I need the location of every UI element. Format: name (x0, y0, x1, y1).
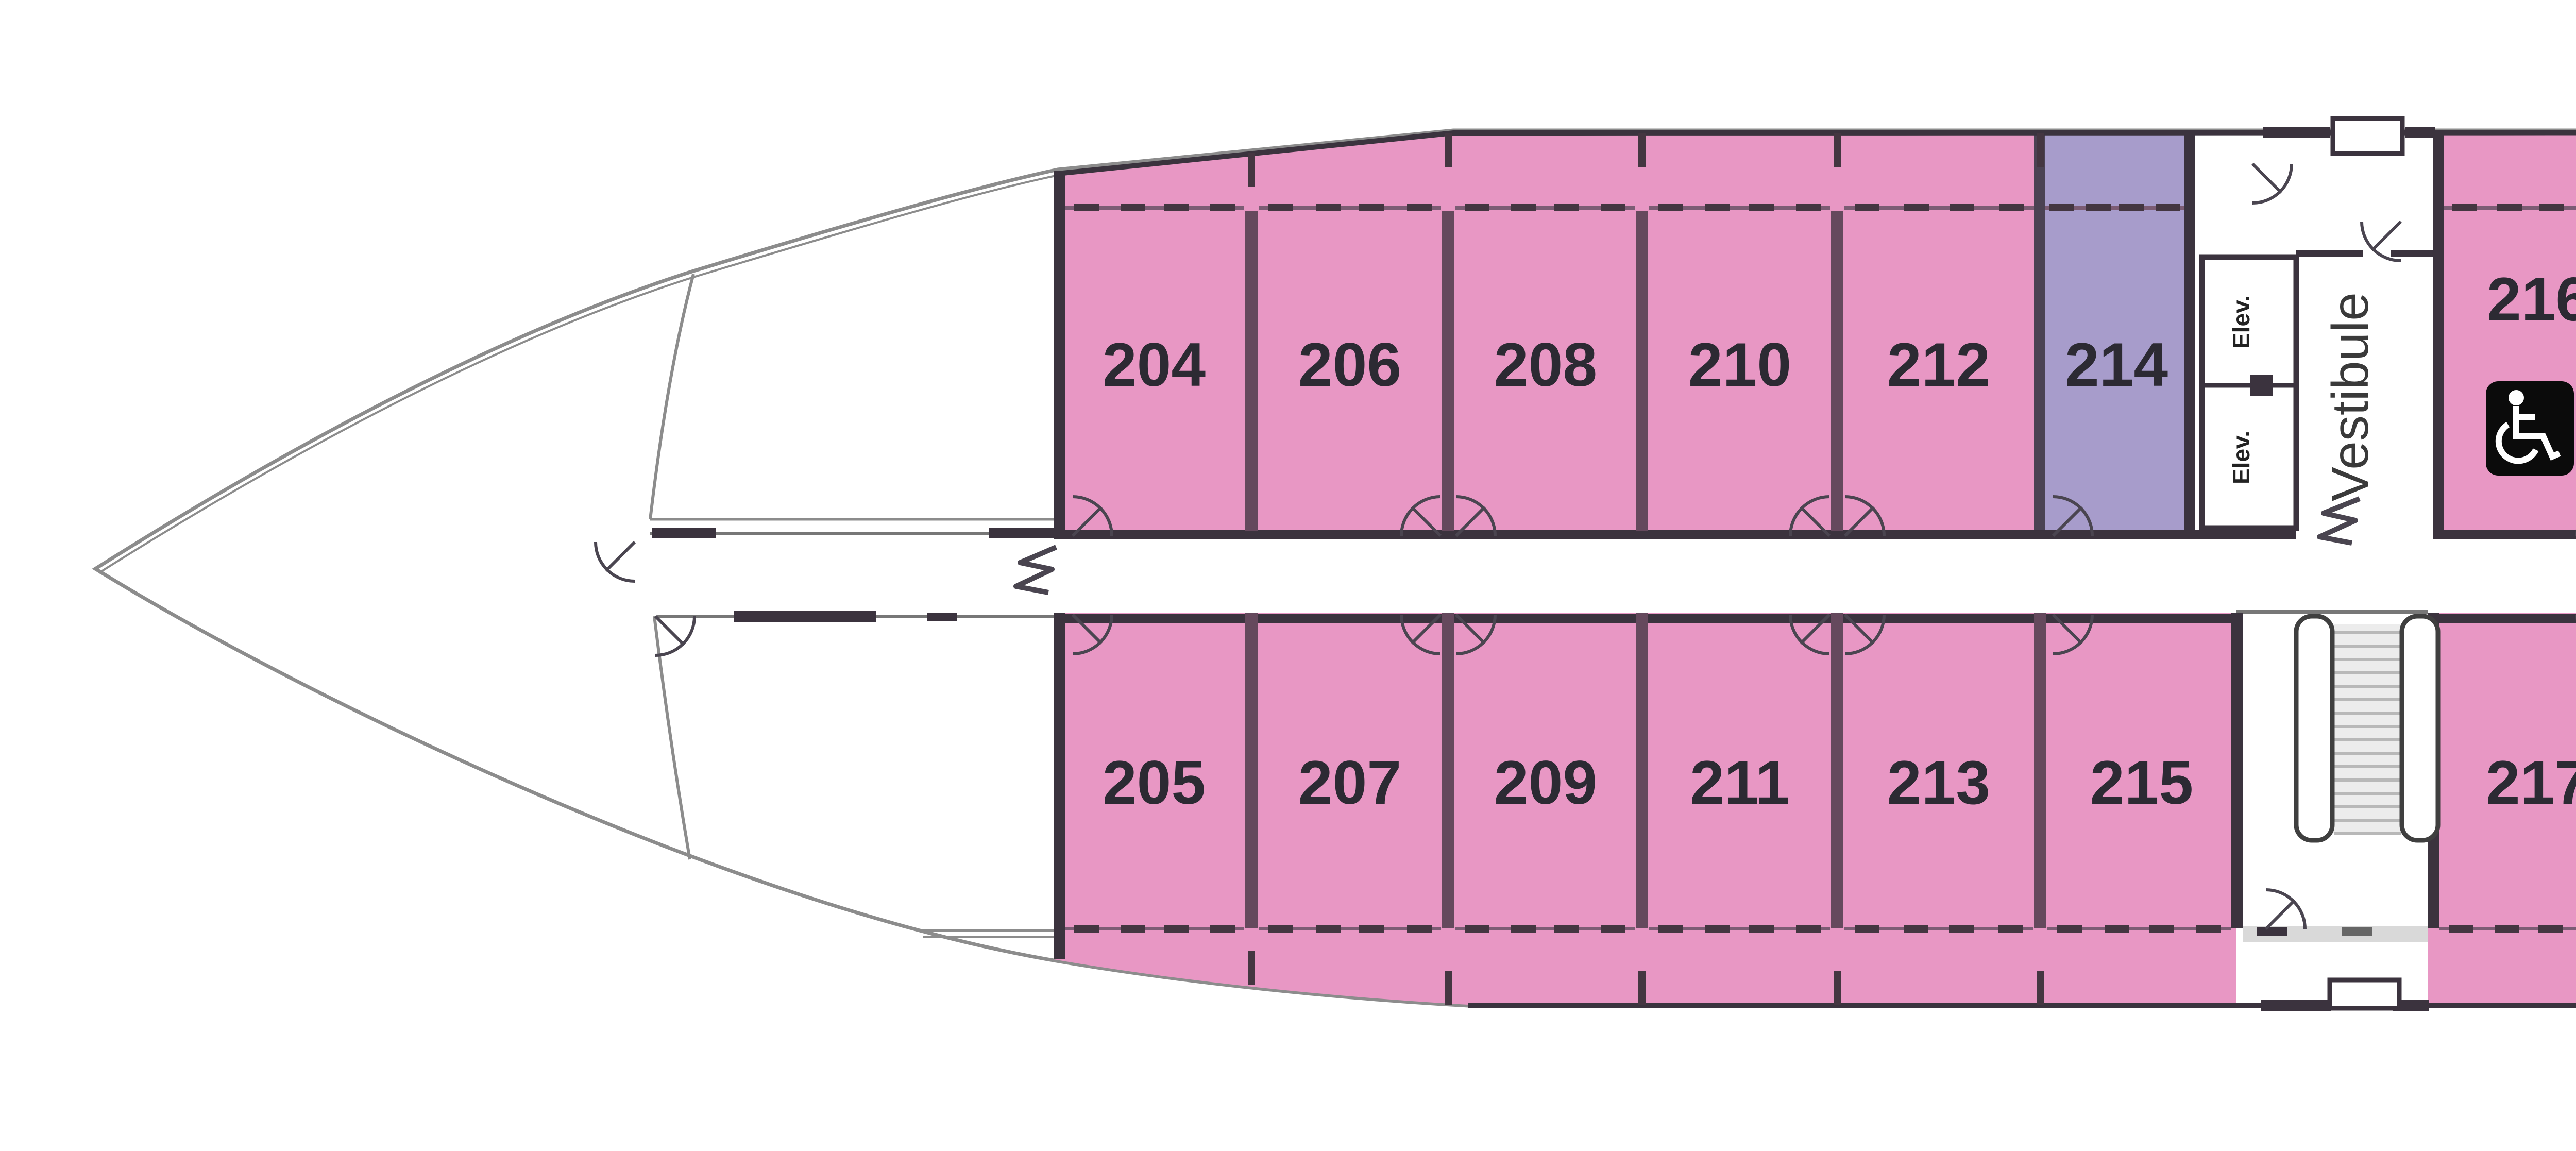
svg-text:206: 206 (1298, 330, 1401, 399)
svg-text:210: 210 (1688, 330, 1791, 399)
svg-text:209: 209 (1494, 748, 1597, 817)
svg-text:217: 217 (2486, 748, 2576, 817)
svg-text:207: 207 (1298, 748, 1401, 817)
svg-text:212: 212 (1887, 330, 1990, 399)
svg-text:Elev.: Elev. (2228, 431, 2255, 484)
svg-text:213: 213 (1887, 748, 1990, 817)
svg-text:214: 214 (2065, 330, 2168, 399)
svg-text:204: 204 (1103, 330, 1206, 399)
svg-text:Vestibule: Vestibule (2321, 292, 2379, 501)
svg-text:208: 208 (1494, 330, 1597, 399)
svg-text:216: 216 (2487, 265, 2576, 334)
svg-text:215: 215 (2090, 748, 2193, 817)
svg-text:211: 211 (1690, 748, 1790, 817)
svg-text:205: 205 (1103, 748, 1206, 817)
svg-text:Elev.: Elev. (2228, 295, 2255, 349)
